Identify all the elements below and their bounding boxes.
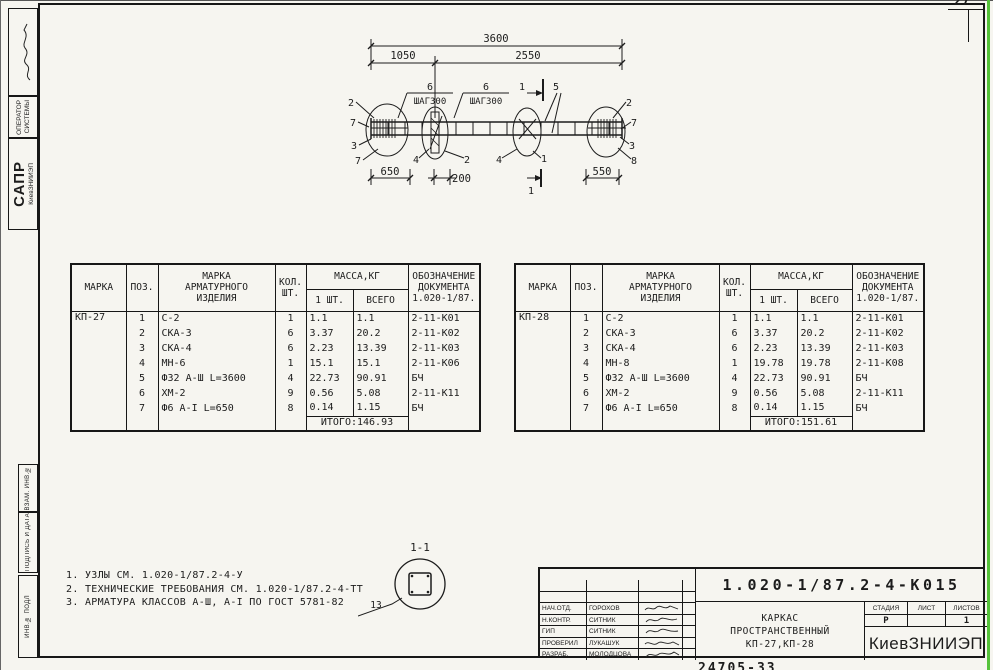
cell-m1: 2.23	[306, 341, 353, 356]
signer-name: СИТНИК	[587, 626, 639, 637]
sheets-label: ЛИСТОВ	[945, 602, 987, 615]
signer-row-3: ПРОВЕРИЛ ЛУКАШУК	[540, 637, 695, 648]
sheet-corner-number: 27	[954, 0, 970, 9]
cell-pos: 6	[570, 386, 602, 401]
sheet-label: ЛИСТ	[907, 602, 945, 615]
col-qty: КОЛ. ШТ.	[275, 264, 306, 311]
corner-line-h	[948, 9, 985, 10]
table-row: 6ХМ-290.565.082-11-К11	[71, 386, 480, 401]
col-item: МАРКА АРМАТУРНОГО ИЗДЕЛИЯ	[602, 264, 719, 311]
pos-bottom-1: 2	[464, 155, 470, 166]
cell-doc: БЧ	[408, 401, 480, 416]
cell-pos: 4	[570, 356, 602, 371]
stamp-sapr-label: САПР	[11, 161, 28, 207]
total-row: ИТОГО:146.93	[71, 416, 480, 431]
stage-label: СТАДИЯ	[864, 602, 907, 615]
page-edge-top	[0, 0, 993, 1]
signer-role: НАЧ.ОТД.	[540, 603, 587, 614]
project-title-line1: КАРКАС	[761, 612, 798, 625]
signer-name: СИТНИК	[587, 615, 639, 625]
cell-pos: 7	[126, 401, 158, 416]
cell-item: Ф32 А-Ш L=3600	[602, 371, 719, 386]
cell-mall: 20.2	[353, 326, 408, 341]
beam-elevation-drawing: 3600 1050 2550 6 ШАГ300 6 ШАГ300 1 1 5 2…	[330, 22, 680, 207]
pos-left-2: 3	[351, 141, 357, 152]
cell-m1: 1.1	[306, 311, 353, 326]
document-number: 1.020-1/87.2-4-К015	[695, 569, 987, 602]
signer-row-4: РАЗРАБ. МОЛОДЦОВА	[540, 648, 695, 660]
cell-item: Ф6 А-I L=650	[602, 401, 719, 416]
signature	[644, 616, 680, 625]
cell-m1: 0.56	[750, 386, 797, 401]
col-doc: ОБОЗНАЧЕНИЕ ДОКУМЕНТА 1.020-1/87.	[852, 264, 924, 311]
spec-table-kp28: МАРКА ПОЗ. МАРКА АРМАТУРНОГО ИЗДЕЛИЯ КОЛ…	[514, 263, 925, 432]
cell-qty: 1	[719, 356, 750, 371]
cell-m1: 0.14	[306, 401, 353, 416]
empty-cell	[570, 416, 602, 431]
pos-right-2: 3	[629, 141, 635, 152]
cell-qty: 4	[275, 371, 306, 386]
empty-cell	[602, 416, 719, 431]
cell-item: ХМ-2	[602, 386, 719, 401]
cell-doc: 2-11-К02	[408, 326, 480, 341]
cell-item: С-2	[158, 311, 275, 326]
pos-left-0: 2	[348, 98, 354, 109]
pos-right-1: 7	[631, 118, 637, 129]
cell-doc: 2-11-К01	[408, 311, 480, 326]
col-pos: ПОЗ.	[126, 264, 158, 311]
cell-pos: 7	[570, 401, 602, 416]
cell-mall: 5.08	[797, 386, 852, 401]
cell-mall: 90.91	[797, 371, 852, 386]
cell-qty: 1	[275, 311, 306, 326]
pos-right-3: 8	[631, 156, 637, 167]
cell-pos: 4	[126, 356, 158, 371]
table-row: 2СКА-363.3720.22-11-К02	[515, 326, 924, 341]
cell-qty: 6	[275, 326, 306, 341]
cell-item: СКА-4	[602, 341, 719, 356]
empty-cell	[126, 416, 158, 431]
dim-overall: 3600	[483, 33, 508, 45]
table-row: 7Ф6 А-I L=65080.141.15БЧ	[71, 401, 480, 416]
pos-bottom-0: 4	[413, 155, 419, 166]
stamp-operator-line1: ОПЕРАТОР	[16, 100, 23, 135]
table-row: 3СКА-462.2313.392-11-К03	[71, 341, 480, 356]
total-cell: ИТОГО:151.61	[750, 416, 852, 431]
cell-doc: 2-11-К03	[408, 341, 480, 356]
dim-left: 1050	[390, 50, 415, 62]
cell-qty: 8	[275, 401, 306, 416]
cell-pos: 1	[126, 311, 158, 326]
cell-m1: 0.56	[306, 386, 353, 401]
col-mass-one: 1 ШТ.	[306, 289, 353, 311]
signature-grid: НАЧ.ОТД. ГОРОХОВ Н.КОНТР. СИТНИК ГИП СИТ…	[540, 569, 695, 660]
drawing-sheet: 27 МОЛОДЦОВА ОПЕРАТОР СИСТЕМЫ САПР КиевЗ…	[0, 0, 993, 670]
col-doc: ОБОЗНАЧЕНИЕ ДОКУМЕНТА 1.020-1/87.	[408, 264, 480, 311]
col-mark: МАРКА	[515, 264, 570, 311]
col-mass: МАССА,КГ	[750, 264, 852, 289]
signer-name: МОЛОДЦОВА	[587, 649, 639, 660]
stage-value: Р	[864, 615, 907, 627]
notes: 1. УЗЛЫ СМ. 1.020-1/87.2-4-У 2. ТЕХНИЧЕС…	[66, 569, 363, 610]
cell-doc: БЧ	[852, 401, 924, 416]
stamp-operator: ОПЕРАТОР СИСТЕМЫ	[8, 96, 38, 138]
cell-item: Ф32 А-Ш L=3600	[158, 371, 275, 386]
cell-m1: 2.23	[750, 341, 797, 356]
col-mass-all: ВСЕГО	[797, 289, 852, 311]
cell-pos: 5	[126, 371, 158, 386]
cell-doc: 2-11-К11	[408, 386, 480, 401]
cell-m1: 3.37	[306, 326, 353, 341]
cell-mall: 20.2	[797, 326, 852, 341]
cell-item: СКА-3	[158, 326, 275, 341]
col-mass-one: 1 ШТ.	[750, 289, 797, 311]
cell-m1: 19.78	[750, 356, 797, 371]
total-cell: ИТОГО:146.93	[306, 416, 408, 431]
cell-doc: 2-11-К02	[852, 326, 924, 341]
cell-pos: 5	[570, 371, 602, 386]
signer-row-1: Н.КОНТР. СИТНИК	[540, 614, 695, 625]
cell-item: МН-8	[602, 356, 719, 371]
table-row: 5Ф32 А-Ш L=3600422.7390.91БЧ	[71, 371, 480, 386]
cell-qty: 9	[719, 386, 750, 401]
empty-cell	[275, 416, 306, 431]
cell-m1: 1.1	[750, 311, 797, 326]
cell-mall: 19.78	[797, 356, 852, 371]
cell-mall: 5.08	[353, 386, 408, 401]
cell-mall: 15.1	[353, 356, 408, 371]
table-row: 6ХМ-290.565.082-11-К11	[515, 386, 924, 401]
cell-qty: 9	[275, 386, 306, 401]
signer-name: ГОРОХОВ	[587, 603, 639, 614]
cell-qty: 1	[275, 356, 306, 371]
corner-line-v	[968, 9, 969, 42]
cell-doc: 2-11-К01	[852, 311, 924, 326]
stamp-inv-podl-label: ИНВ.№ ПОДЛ	[25, 595, 31, 638]
section-detail-title: 1-1	[410, 541, 430, 554]
section-detail: 1-1 13	[358, 538, 470, 623]
signer-role: РАЗРАБ.	[540, 649, 587, 660]
dim-right: 2550	[515, 50, 540, 62]
cell-mall: 90.91	[353, 371, 408, 386]
signer-row-0: НАЧ.ОТД. ГОРОХОВ	[540, 602, 695, 614]
cell-item: СКА-4	[158, 341, 275, 356]
cell-qty: 6	[719, 341, 750, 356]
stamp-vzam-inv: ВЗАМ. ИНВ.№	[18, 464, 38, 512]
spec-table-body-kp28: КП-281С-211.11.12-11-К012СКА-363.3720.22…	[515, 311, 924, 431]
cell-qty: 8	[719, 401, 750, 416]
col-mass-all: ВСЕГО	[353, 289, 408, 311]
step-label-2: ШАГ300	[470, 97, 503, 107]
total-row: ИТОГО:151.61	[515, 416, 924, 431]
empty-cell	[158, 416, 275, 431]
cell-item: СКА-3	[602, 326, 719, 341]
stamp-sapr-org: КиевЗНИИЭП	[28, 163, 35, 205]
signature	[644, 627, 680, 636]
cell-doc: 2-11-К08	[852, 356, 924, 371]
table-row: 7Ф6 А-I L=65080.141.15БЧ	[515, 401, 924, 416]
mark-cell: КП-27	[71, 311, 126, 431]
cell-doc: 2-11-К03	[852, 341, 924, 356]
page-edge-left	[0, 0, 1, 670]
signature	[644, 650, 680, 659]
step-count-2: 6	[483, 82, 489, 93]
spec-table-body-kp27: КП-271С-211.11.12-11-К012СКА-363.3720.22…	[71, 311, 480, 431]
pos-label-5: 5	[553, 82, 559, 93]
signature-developer	[21, 22, 35, 82]
scan-edge-strip	[987, 0, 990, 670]
table-row: 4МН-8119.7819.782-11-К08	[515, 356, 924, 371]
pos-bottom-2: 4	[496, 155, 502, 166]
cell-mall: 13.39	[797, 341, 852, 356]
cell-qty: 4	[719, 371, 750, 386]
table-row: 2СКА-363.3720.22-11-К02	[71, 326, 480, 341]
section-detail-pos: 13	[370, 600, 381, 611]
cell-pos: 3	[126, 341, 158, 356]
step-label-1: ШАГ300	[414, 97, 447, 107]
dim-200: 200	[452, 173, 471, 185]
signer-row-2: ГИП СИТНИК	[540, 625, 695, 637]
stamp-vzam-inv-label: ВЗАМ. ИНВ.№	[25, 466, 31, 510]
cell-pos: 3	[570, 341, 602, 356]
project-title-line3: КП-27,КП-28	[746, 638, 814, 651]
cell-doc: 2-11-К11	[852, 386, 924, 401]
cell-m1: 15.1	[306, 356, 353, 371]
cell-qty: 6	[719, 326, 750, 341]
spec-table-kp27: МАРКА ПОЗ. МАРКА АРМАТУРНОГО ИЗДЕЛИЯ КОЛ…	[70, 263, 481, 432]
signer-role: ГИП	[540, 626, 587, 637]
pos-bottom-3: 1	[541, 154, 547, 165]
col-item: МАРКА АРМАТУРНОГО ИЗДЕЛИЯ	[158, 264, 275, 311]
stamp-operator-line2: СИСТЕМЫ	[24, 100, 31, 133]
sheets-value: 1	[945, 615, 987, 627]
org-logo: КиевЗНИИЭП	[864, 627, 987, 660]
stamp-podpis-data: ПОДПИСЬ И ДАТА	[18, 512, 38, 573]
cell-qty: 1	[719, 311, 750, 326]
table-row: 5Ф32 А-Ш L=3600422.7390.91БЧ	[515, 371, 924, 386]
cell-item: ХМ-2	[158, 386, 275, 401]
cell-mall: 13.39	[353, 341, 408, 356]
cell-mall: 1.1	[797, 311, 852, 326]
empty-cell	[852, 416, 924, 431]
pos-left-3: 7	[355, 156, 361, 167]
signer-role: Н.КОНТР.	[540, 615, 587, 625]
col-pos: ПОЗ.	[570, 264, 602, 311]
signature	[644, 604, 680, 613]
dim-650: 650	[381, 166, 400, 178]
section-mark-top: 1	[519, 82, 525, 93]
pos-right-0: 2	[626, 98, 632, 109]
cell-doc: БЧ	[408, 371, 480, 386]
mark-cell: КП-28	[515, 311, 570, 431]
cell-mall: 1.15	[353, 401, 408, 416]
cell-mall: 1.1	[353, 311, 408, 326]
cell-item: МН-6	[158, 356, 275, 371]
table-row: КП-281С-211.11.12-11-К01	[515, 311, 924, 326]
archive-stamp-number: 24705-33	[698, 661, 777, 670]
signer-name: ЛУКАШУК	[587, 638, 639, 648]
project-title-line2: ПРОСТРАНСТВЕННЫЙ	[730, 625, 830, 638]
col-qty: КОЛ. ШТ.	[719, 264, 750, 311]
empty-cell	[408, 416, 480, 431]
note-2: 2. ТЕХНИЧЕСКИЕ ТРЕБОВАНИЯ СМ. 1.020-1/87…	[66, 583, 363, 597]
table-row: 4МН-6115.115.12-11-К06	[71, 356, 480, 371]
cell-doc: 2-11-К06	[408, 356, 480, 371]
pos-left-1: 7	[350, 118, 356, 129]
cell-pos: 2	[126, 326, 158, 341]
cell-m1: 3.37	[750, 326, 797, 341]
cell-item: С-2	[602, 311, 719, 326]
empty-cell	[719, 416, 750, 431]
signer-role: ПРОВЕРИЛ	[540, 638, 587, 648]
stamp-inv-podl: ИНВ.№ ПОДЛ	[18, 575, 38, 658]
dim-550: 550	[593, 166, 612, 178]
cell-mall: 1.15	[797, 401, 852, 416]
table-row: 3СКА-462.2313.392-11-К03	[515, 341, 924, 356]
title-block: 1.020-1/87.2-4-К015 КАРКАС ПРОСТРАНСТВЕН…	[538, 567, 985, 658]
note-1: 1. УЗЛЫ СМ. 1.020-1/87.2-4-У	[66, 569, 363, 583]
cell-m1: 0.14	[750, 401, 797, 416]
col-mark: МАРКА	[71, 264, 126, 311]
col-mass: МАССА,КГ	[306, 264, 408, 289]
section-mark-bottom: 1	[528, 186, 534, 197]
note-3: 3. АРМАТУРА КЛАССОВ А-Ш, А-I ПО ГОСТ 578…	[66, 596, 363, 610]
cell-item: Ф6 А-I L=650	[158, 401, 275, 416]
cell-qty: 6	[275, 341, 306, 356]
project-title: КАРКАС ПРОСТРАНСТВЕННЫЙ КП-27,КП-28	[695, 602, 864, 660]
step-count-1: 6	[427, 82, 433, 93]
cell-doc: БЧ	[852, 371, 924, 386]
table-row: КП-271С-211.11.12-11-К01	[71, 311, 480, 326]
sheet-value	[907, 615, 945, 627]
cell-pos: 6	[126, 386, 158, 401]
cell-pos: 1	[570, 311, 602, 326]
signature	[644, 639, 680, 648]
stamp-podpis-data-label: ПОДПИСЬ И ДАТА	[25, 513, 31, 571]
cell-m1: 22.73	[306, 371, 353, 386]
cell-pos: 2	[570, 326, 602, 341]
cell-m1: 22.73	[750, 371, 797, 386]
stamp-developer: МОЛОДЦОВА	[8, 8, 38, 96]
stamp-sapr: САПР КиевЗНИИЭП	[8, 138, 38, 230]
